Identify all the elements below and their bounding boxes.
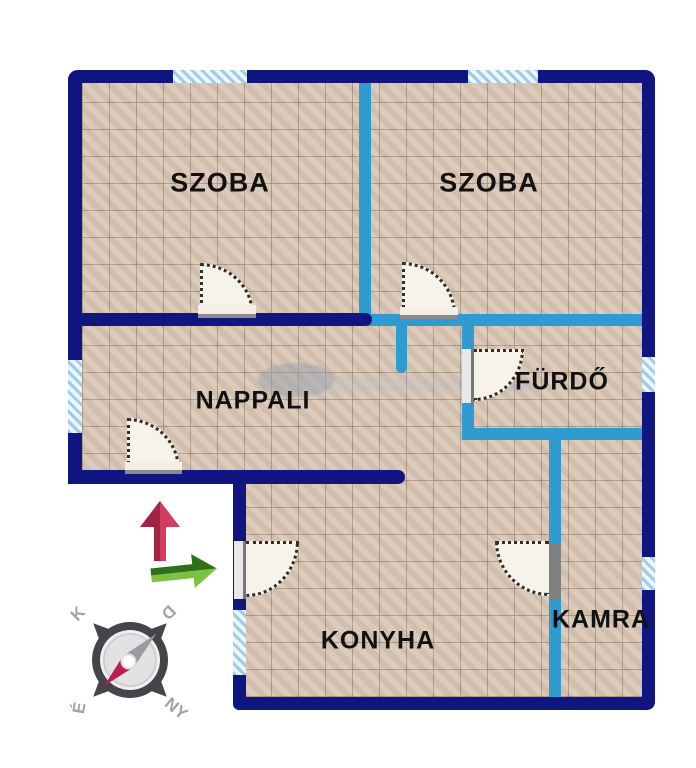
door-sill-nappali xyxy=(125,462,182,474)
door-sill-szoba-right xyxy=(400,307,458,319)
door-leaf-konyha xyxy=(234,541,246,599)
room-label-furdo: FÜRDŐ xyxy=(515,368,609,397)
window-nappali xyxy=(68,360,82,433)
wall-exterior-top xyxy=(68,70,655,83)
room-label-szoba-right: SZOBA xyxy=(439,168,539,199)
wall-nappali-bottom xyxy=(68,470,405,484)
window-szoba-right xyxy=(468,70,538,83)
door-sill-szoba-left xyxy=(198,305,256,318)
wall-furdo-bottom xyxy=(462,428,642,440)
compass-rose-icon xyxy=(78,608,182,712)
door-leaf-kamra xyxy=(549,543,561,599)
floorplan-canvas: SZOBA SZOBA NAPPALI FÜRDŐ KONYHA KAMRA K… xyxy=(0,0,696,768)
room-label-nappali: NAPPALI xyxy=(196,387,311,416)
compass-label-north: É xyxy=(69,701,91,716)
wall-exterior-bottom xyxy=(233,697,655,710)
room-label-kamra: KAMRA xyxy=(552,606,650,635)
window-kamra xyxy=(642,557,655,590)
window-szoba-left xyxy=(173,70,247,83)
room-label-szoba-left: SZOBA xyxy=(170,168,270,199)
window-konyha xyxy=(233,610,246,675)
up-arrow-icon xyxy=(140,501,180,561)
wall-szoba-divider xyxy=(359,83,371,315)
door-leaf-furdo xyxy=(462,349,474,403)
right-arrow-icon xyxy=(149,550,219,595)
window-furdo xyxy=(642,357,655,392)
room-label-konyha: KONYHA xyxy=(321,627,435,656)
wall-hall-stub xyxy=(396,326,407,373)
